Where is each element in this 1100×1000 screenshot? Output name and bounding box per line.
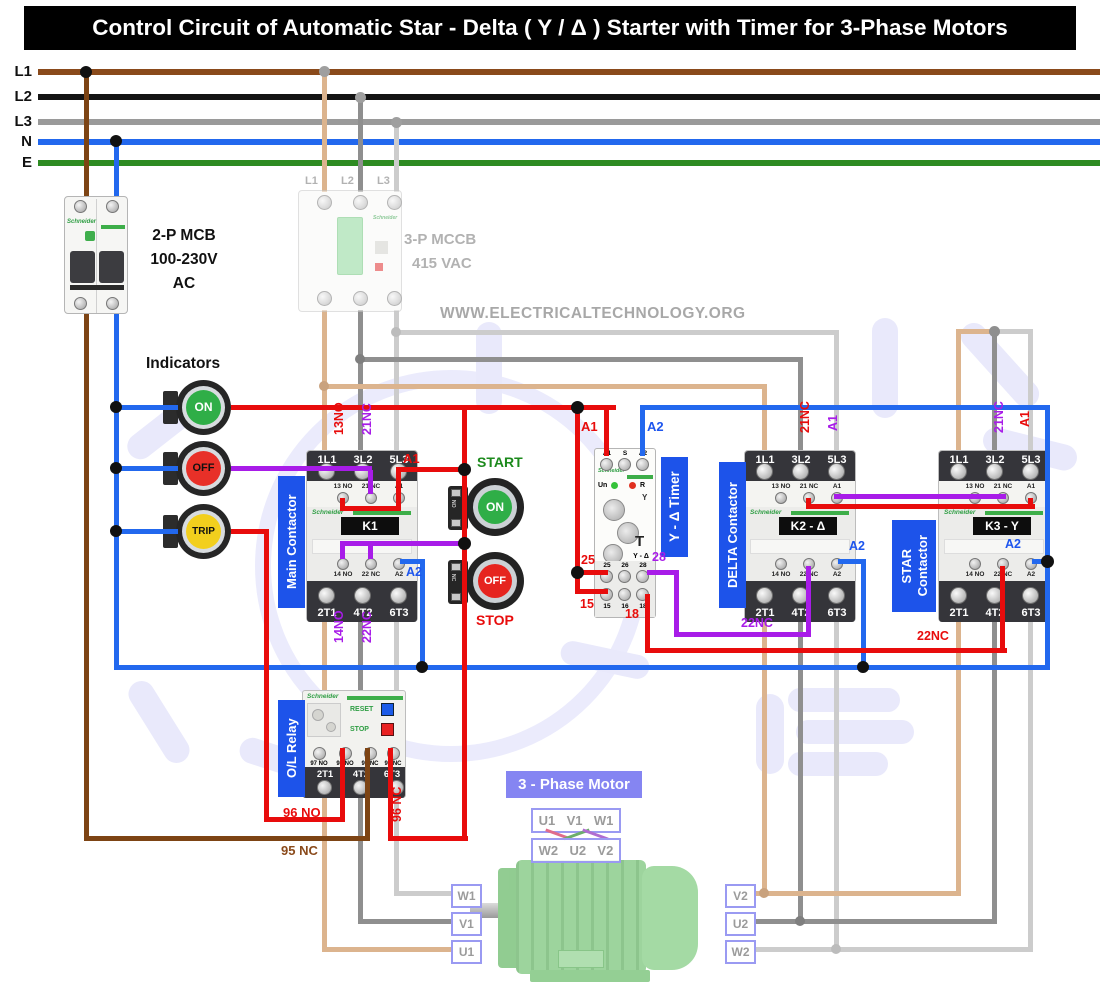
rail-earth	[38, 160, 1100, 166]
timer-r-label: R	[640, 482, 645, 489]
main-contactor-k1: 1L1 3L2 5L3 13 NO 21 NC A1 Schneider K1 …	[306, 450, 418, 622]
neutral-bottom-rail	[114, 665, 1050, 670]
motor-w2-wire	[756, 947, 1033, 952]
delta-contactor-k2: 1L1 3L2 5L3 13 NO 21 NC A1 Schneider K2 …	[744, 450, 856, 622]
label-timer-a2: A2	[647, 420, 671, 434]
k2-designation-plate: K2 - Δ	[779, 517, 837, 535]
link-w2: W2	[539, 843, 559, 858]
label-delta-a1: A1	[827, 404, 840, 442]
k3-screw	[950, 463, 967, 480]
timer-a2-drop	[640, 410, 645, 456]
junction-motor-u2	[795, 916, 805, 926]
label-k1-a2: A2	[406, 566, 430, 579]
branch-l3-to-delta	[394, 330, 839, 335]
motor-u1-wire	[322, 947, 451, 952]
timer-yd-label: Y - Δ	[628, 553, 654, 560]
label-timer-18: 18	[625, 608, 643, 621]
motor-nameplate	[558, 950, 604, 968]
delta-contactor-tag: DELTA Contactor	[719, 462, 746, 608]
mccb-terminal-screw	[317, 291, 332, 306]
mcb-terminal-screw	[106, 297, 119, 310]
rail-label-l2: L2	[6, 89, 32, 105]
k3-screw	[986, 463, 1003, 480]
mcb-caption-line2: 100-230V	[132, 252, 236, 268]
k1-screw	[354, 587, 371, 604]
watermark-hand-bar	[796, 720, 914, 744]
ol-relay-tag: O/L Relay	[278, 700, 305, 797]
mcb-2pole: Schneider	[64, 196, 128, 314]
stop-button[interactable]: OFF	[478, 564, 512, 598]
junction-motor-v2	[759, 888, 769, 898]
k3-designation-plate: K3 - Y	[973, 517, 1031, 535]
timer-28-drop	[674, 570, 679, 637]
neutral-stub-trip-lamp	[114, 529, 178, 534]
k1-aux-14no: 14 NO	[328, 571, 358, 578]
k2-screw	[756, 587, 773, 604]
k3-green-bar	[985, 511, 1043, 515]
indicators-heading: Indicators	[146, 356, 246, 372]
label-star-a1: A1	[1019, 398, 1032, 440]
start-caption: START	[477, 455, 541, 470]
on-indicator-lamp: ON	[186, 390, 221, 425]
k2-aux-13no: 13 NO	[766, 483, 796, 490]
k2-brand: Schneider	[750, 509, 781, 516]
rail-l3	[38, 119, 1100, 125]
watermark-shape	[476, 322, 502, 414]
timer-power-led	[611, 482, 618, 489]
motor-terminal-v2: V2	[725, 884, 756, 908]
k1-terminal-6t3: 6T3	[381, 607, 417, 619]
k2-green-bar	[791, 511, 849, 515]
mcb-caption-line3: AC	[132, 276, 236, 292]
junction-timer-25	[571, 566, 584, 579]
k1-aux-screw	[365, 558, 377, 570]
k2-aux-14no: 14 NO	[766, 571, 796, 578]
timer-28-to-delta-h	[674, 632, 811, 637]
start-terminal	[451, 519, 461, 527]
junction-star-a2	[1041, 555, 1054, 568]
k3-terminal-4t2: 4T2	[977, 607, 1013, 619]
k2-screw	[828, 587, 845, 604]
k1-screw	[390, 587, 407, 604]
mcb-green-bar	[101, 225, 125, 229]
star-contactor-k3: 1L1 3L2 5L3 13 NO 21 NC A1 Schneider K3 …	[938, 450, 1050, 622]
stop-type-label: NC	[450, 574, 456, 581]
ol-terminal-4t2: 4T2	[343, 769, 379, 780]
delta-out-tan	[762, 620, 767, 896]
label-k1-13no: 13NO	[333, 396, 346, 442]
k1-aux-screw	[337, 558, 349, 570]
start-terminal	[451, 489, 461, 497]
k2-terminal-6t3: 6T3	[819, 607, 855, 619]
deltaA1-to-star21nc-h	[834, 494, 1006, 499]
junction-star-point	[989, 326, 1000, 337]
k1-designation-plate: K1	[341, 517, 399, 535]
ol-96nc-h	[388, 836, 468, 841]
k2-aux-screw	[775, 492, 787, 504]
mccb-terminal-l2: L2	[341, 176, 354, 188]
k2-aux-a1: A1	[822, 483, 852, 490]
link-u1: U1	[539, 813, 556, 828]
timer-terminal-s: S	[617, 450, 633, 457]
red-supply-rail	[231, 405, 616, 410]
mcb-terminal-screw	[106, 200, 119, 213]
wire-l1-to-mcb	[84, 72, 89, 841]
k1-screw	[318, 587, 335, 604]
k1-a1-to-start	[396, 467, 467, 472]
rail-neutral	[38, 139, 1100, 145]
star-22nc-riser	[1000, 566, 1005, 653]
mccb-terminal-screw	[387, 195, 402, 210]
watermark-hand-bar	[756, 694, 784, 774]
label-timer-28: 28	[652, 551, 674, 564]
timer-screw	[618, 570, 631, 583]
mccb-red-button[interactable]	[375, 263, 383, 271]
wire-l3-to-mccb	[394, 122, 399, 192]
k3-aux-screw	[969, 558, 981, 570]
mccb-terminal-screw	[353, 291, 368, 306]
timer-screw	[618, 588, 631, 601]
label-k1-a1: A1	[403, 452, 429, 466]
timer-y-label: Y	[642, 493, 647, 502]
mcb-terminal-screw	[74, 297, 87, 310]
label-ol-96no: 96 NO	[283, 806, 331, 820]
motor-w1-wire	[394, 891, 451, 896]
mccb-terminal-l1: L1	[305, 176, 318, 188]
k2-screw	[828, 463, 845, 480]
trip-to-ol-riser	[340, 748, 345, 819]
label-k1-21nc: 21NC	[361, 396, 374, 442]
mccb-caption-line1: 3-P MCCB	[404, 232, 500, 248]
ol-terminal-2t1: 2T1	[307, 769, 343, 780]
link-u2: U2	[569, 843, 586, 858]
star-out-tan	[956, 620, 961, 896]
main-contactor-tag: Main Contactor	[278, 476, 305, 608]
motor-v1-wire	[358, 919, 451, 924]
junction-timer-feed	[571, 401, 584, 414]
label-ol-96nc: 96 NC	[391, 780, 404, 828]
k2-aux-screw	[775, 558, 787, 570]
label-delta-22nc: 22NC	[741, 617, 785, 630]
star-tag-line1: STAR	[899, 549, 914, 583]
star-tag-line2: Contactor	[915, 535, 930, 596]
label-star-21nc: 21NC	[993, 394, 1006, 440]
timer-t-label: T	[635, 533, 644, 550]
junction-l1-mcb	[80, 66, 92, 78]
neutral-right-riser	[1045, 405, 1050, 670]
motor-caption: 3 - Phase Motor	[506, 771, 642, 798]
junction-k1-a2	[416, 661, 428, 673]
mcb-toggle-bar	[70, 285, 124, 290]
trip-indicator-lamp: TRIP	[186, 514, 221, 549]
timer-18-to-star-h	[645, 648, 1007, 653]
mccb-terminal-screw	[387, 291, 402, 306]
mccb-brand: Schneider	[373, 215, 397, 221]
timer-terminal-26: 26	[617, 562, 633, 569]
timer-green-bar	[627, 475, 653, 479]
timer-dial-1[interactable]	[603, 499, 625, 521]
timer-terminal-28: 28	[635, 562, 651, 569]
k3-aux-21nc: 21 NC	[988, 483, 1018, 490]
watermark-shape	[872, 318, 898, 418]
motor-end-cap	[642, 866, 698, 970]
timer-terminal-25: 25	[599, 562, 615, 569]
label-k1-14no: 14NO	[333, 604, 346, 650]
k2-aux-21nc: 21 NC	[794, 483, 824, 490]
junction-branch-lightgray	[391, 327, 401, 337]
motor-v2-wire	[756, 891, 961, 896]
junction-on-lamp	[110, 401, 122, 413]
trip-vertical	[264, 529, 269, 822]
wire-95nc-riser	[365, 748, 370, 840]
wire-l1-to-mccb	[322, 72, 327, 192]
timer-tag: Y - Δ Timer	[661, 457, 688, 557]
timer-un-label: Un	[598, 482, 607, 489]
watermark-hand-bar	[788, 688, 900, 712]
ol-stop-button[interactable]	[381, 723, 394, 736]
rail-label-n: N	[6, 134, 32, 150]
timer-screw	[600, 458, 613, 471]
junction-stop	[458, 537, 471, 550]
rail-label-e: E	[6, 155, 32, 171]
mccb-terminal-screw	[353, 195, 368, 210]
branch-l1-to-delta	[322, 384, 767, 389]
mcb-caption-line1: 2-P MCB	[132, 228, 236, 244]
link-v2: V2	[597, 843, 613, 858]
mcb-brand: Schneider	[67, 219, 96, 225]
timer-relay-led	[629, 482, 636, 489]
junction-branch-gray	[355, 354, 365, 364]
k1-a1-riser	[396, 467, 401, 511]
junction-l3-mccb	[391, 117, 402, 128]
k3-aux-a1: A1	[1016, 483, 1046, 490]
website-watermark: WWW.ELECTRICALTECHNOLOGY.ORG	[440, 306, 780, 322]
junction-start	[458, 463, 471, 476]
delta-feed-tan	[762, 384, 767, 450]
neutral-top-run	[640, 405, 1050, 410]
mcb-green-indicator	[85, 231, 95, 241]
label-star-a2: A2	[1005, 538, 1027, 551]
mcb-pole-divider	[96, 199, 97, 313]
k2-terminal-4t2: 4T2	[783, 607, 819, 619]
k1-brand: Schneider	[312, 509, 343, 516]
motor-link-box-bottom: W2 U2 V2	[531, 838, 621, 863]
wire-95nc-horizontal	[84, 836, 370, 841]
off-to-21nc-drop	[368, 470, 373, 494]
k1-22nc-stub	[368, 545, 373, 559]
stop-caption: STOP	[476, 613, 540, 628]
junction-l1-mccb	[319, 66, 330, 77]
mccb-caption-line2: 415 VAC	[412, 256, 502, 272]
link-v1: V1	[567, 813, 583, 828]
motor-terminal-u2: U2	[725, 912, 756, 936]
timer-terminal-15: 15	[599, 603, 615, 610]
mccb-3pole: Schneider	[298, 190, 402, 312]
motor-base	[530, 970, 650, 982]
delta21nc-to-starA1-h	[806, 504, 1035, 509]
link-w1: W1	[594, 813, 614, 828]
ol-detail	[326, 722, 336, 732]
junction-delta-a2	[857, 661, 869, 673]
motor-terminal-w2: W2	[725, 940, 756, 964]
timer-screw	[618, 458, 631, 471]
k1-14no-stub	[340, 545, 345, 559]
rail-l1	[38, 69, 1100, 75]
branch-l2-to-delta	[358, 357, 803, 362]
stop-terminal	[451, 593, 461, 601]
star-a1-stub	[1028, 498, 1033, 508]
ol-contact-screw	[313, 747, 326, 760]
off-indicator-lamp: OFF	[186, 451, 221, 486]
k1-green-bar	[353, 511, 411, 515]
k3-screw	[1022, 463, 1039, 480]
label-star-22nc: 22NC	[917, 630, 963, 643]
motor-link-box-top: U1 V1 W1	[531, 808, 621, 833]
ol-green-bar	[347, 696, 403, 700]
start-button[interactable]: ON	[478, 490, 512, 524]
mccb-toggle[interactable]	[337, 217, 363, 275]
motor-terminal-u1: U1	[451, 940, 482, 964]
junction-off-lamp	[110, 462, 122, 474]
junction-trip-lamp	[110, 525, 122, 537]
mcb-toggle-left[interactable]	[70, 251, 95, 283]
mcb-terminal-screw	[74, 200, 87, 213]
k3-brand: Schneider	[944, 509, 975, 516]
start-type-label: NO	[450, 500, 456, 508]
k3-aux-14no: 14 NO	[960, 571, 990, 578]
k2-aux-a2: A2	[822, 571, 852, 578]
mccb-qr-detail	[375, 241, 388, 254]
ol-dial-area	[307, 703, 341, 737]
diagram-title: Control Circuit of Automatic Star - Delt…	[24, 6, 1076, 50]
star-feed-tan	[956, 329, 961, 450]
delta-22nc-riser	[806, 566, 811, 637]
neutral-stub-off-lamp	[114, 466, 178, 471]
label-delta-21nc: 21NC	[799, 394, 812, 440]
k1-aux-13no: 13 NO	[328, 483, 358, 490]
k1-14no-22nc-h	[340, 541, 467, 546]
k2-screw	[792, 463, 809, 480]
k3-terminal-6t3: 6T3	[1013, 607, 1049, 619]
rail-label-l1: L1	[6, 64, 32, 80]
motor-terminal-w1: W1	[451, 884, 482, 908]
diagram-canvas: Control Circuit of Automatic Star - Delt…	[0, 0, 1100, 1000]
label-timer-25: 25	[581, 554, 601, 567]
k3-aux-a2: A2	[1016, 571, 1046, 578]
rail-l2	[38, 94, 1100, 100]
three-phase-motor	[468, 850, 708, 990]
motor-u2-wire	[756, 919, 997, 924]
watermark-shape	[124, 676, 195, 768]
label-timer-a1: A1	[581, 420, 605, 434]
label-delta-a2: A2	[849, 540, 871, 553]
off-lamp-wire	[231, 466, 372, 471]
label-ol-95nc: 95 NC	[281, 844, 329, 858]
motor-terminal-v1: V1	[451, 912, 482, 936]
k3-screw	[1022, 587, 1039, 604]
ol-reset-button[interactable]	[381, 703, 394, 716]
label-timer-15: 15	[580, 598, 600, 611]
junction-branch-tan	[319, 381, 329, 391]
mccb-terminal-l3: L3	[377, 176, 390, 188]
k2-screw	[756, 463, 773, 480]
k3-screw	[950, 587, 967, 604]
k1-aux-22nc: 22 NC	[356, 571, 386, 578]
k3-aux-13no: 13 NO	[960, 483, 990, 490]
junction-l2-mccb	[355, 92, 366, 103]
junction-motor-w2	[831, 944, 841, 954]
mcb-toggle-right[interactable]	[99, 251, 124, 283]
junction-n-mcb	[110, 135, 122, 147]
label-k1-22nc: 22NC	[361, 604, 374, 650]
k1-13no-jumper-h	[340, 506, 401, 511]
timer-15-stub	[575, 589, 608, 594]
ol-brand: Schneider	[307, 693, 338, 700]
timer-18-drop	[645, 594, 650, 653]
k3-body-detail	[944, 539, 1044, 554]
rail-label-l3: L3	[6, 114, 32, 130]
star-contactor-tag: STAR Contactor	[892, 520, 936, 612]
stop-terminal	[451, 563, 461, 571]
mccb-terminal-screw	[317, 195, 332, 210]
neutral-stub-on-lamp	[114, 405, 178, 410]
k2-body-detail	[750, 539, 850, 554]
k3-terminal-2t1: 2T1	[941, 607, 977, 619]
timer-screw	[636, 458, 649, 471]
ol-current-dial[interactable]	[312, 709, 324, 721]
ol-load-screw	[317, 780, 332, 795]
ol-stop-label: STOP	[350, 726, 369, 733]
delta-a2-drop	[861, 559, 866, 670]
ol-reset-label: RESET	[350, 706, 373, 713]
wire-l2-to-mccb	[358, 97, 363, 192]
